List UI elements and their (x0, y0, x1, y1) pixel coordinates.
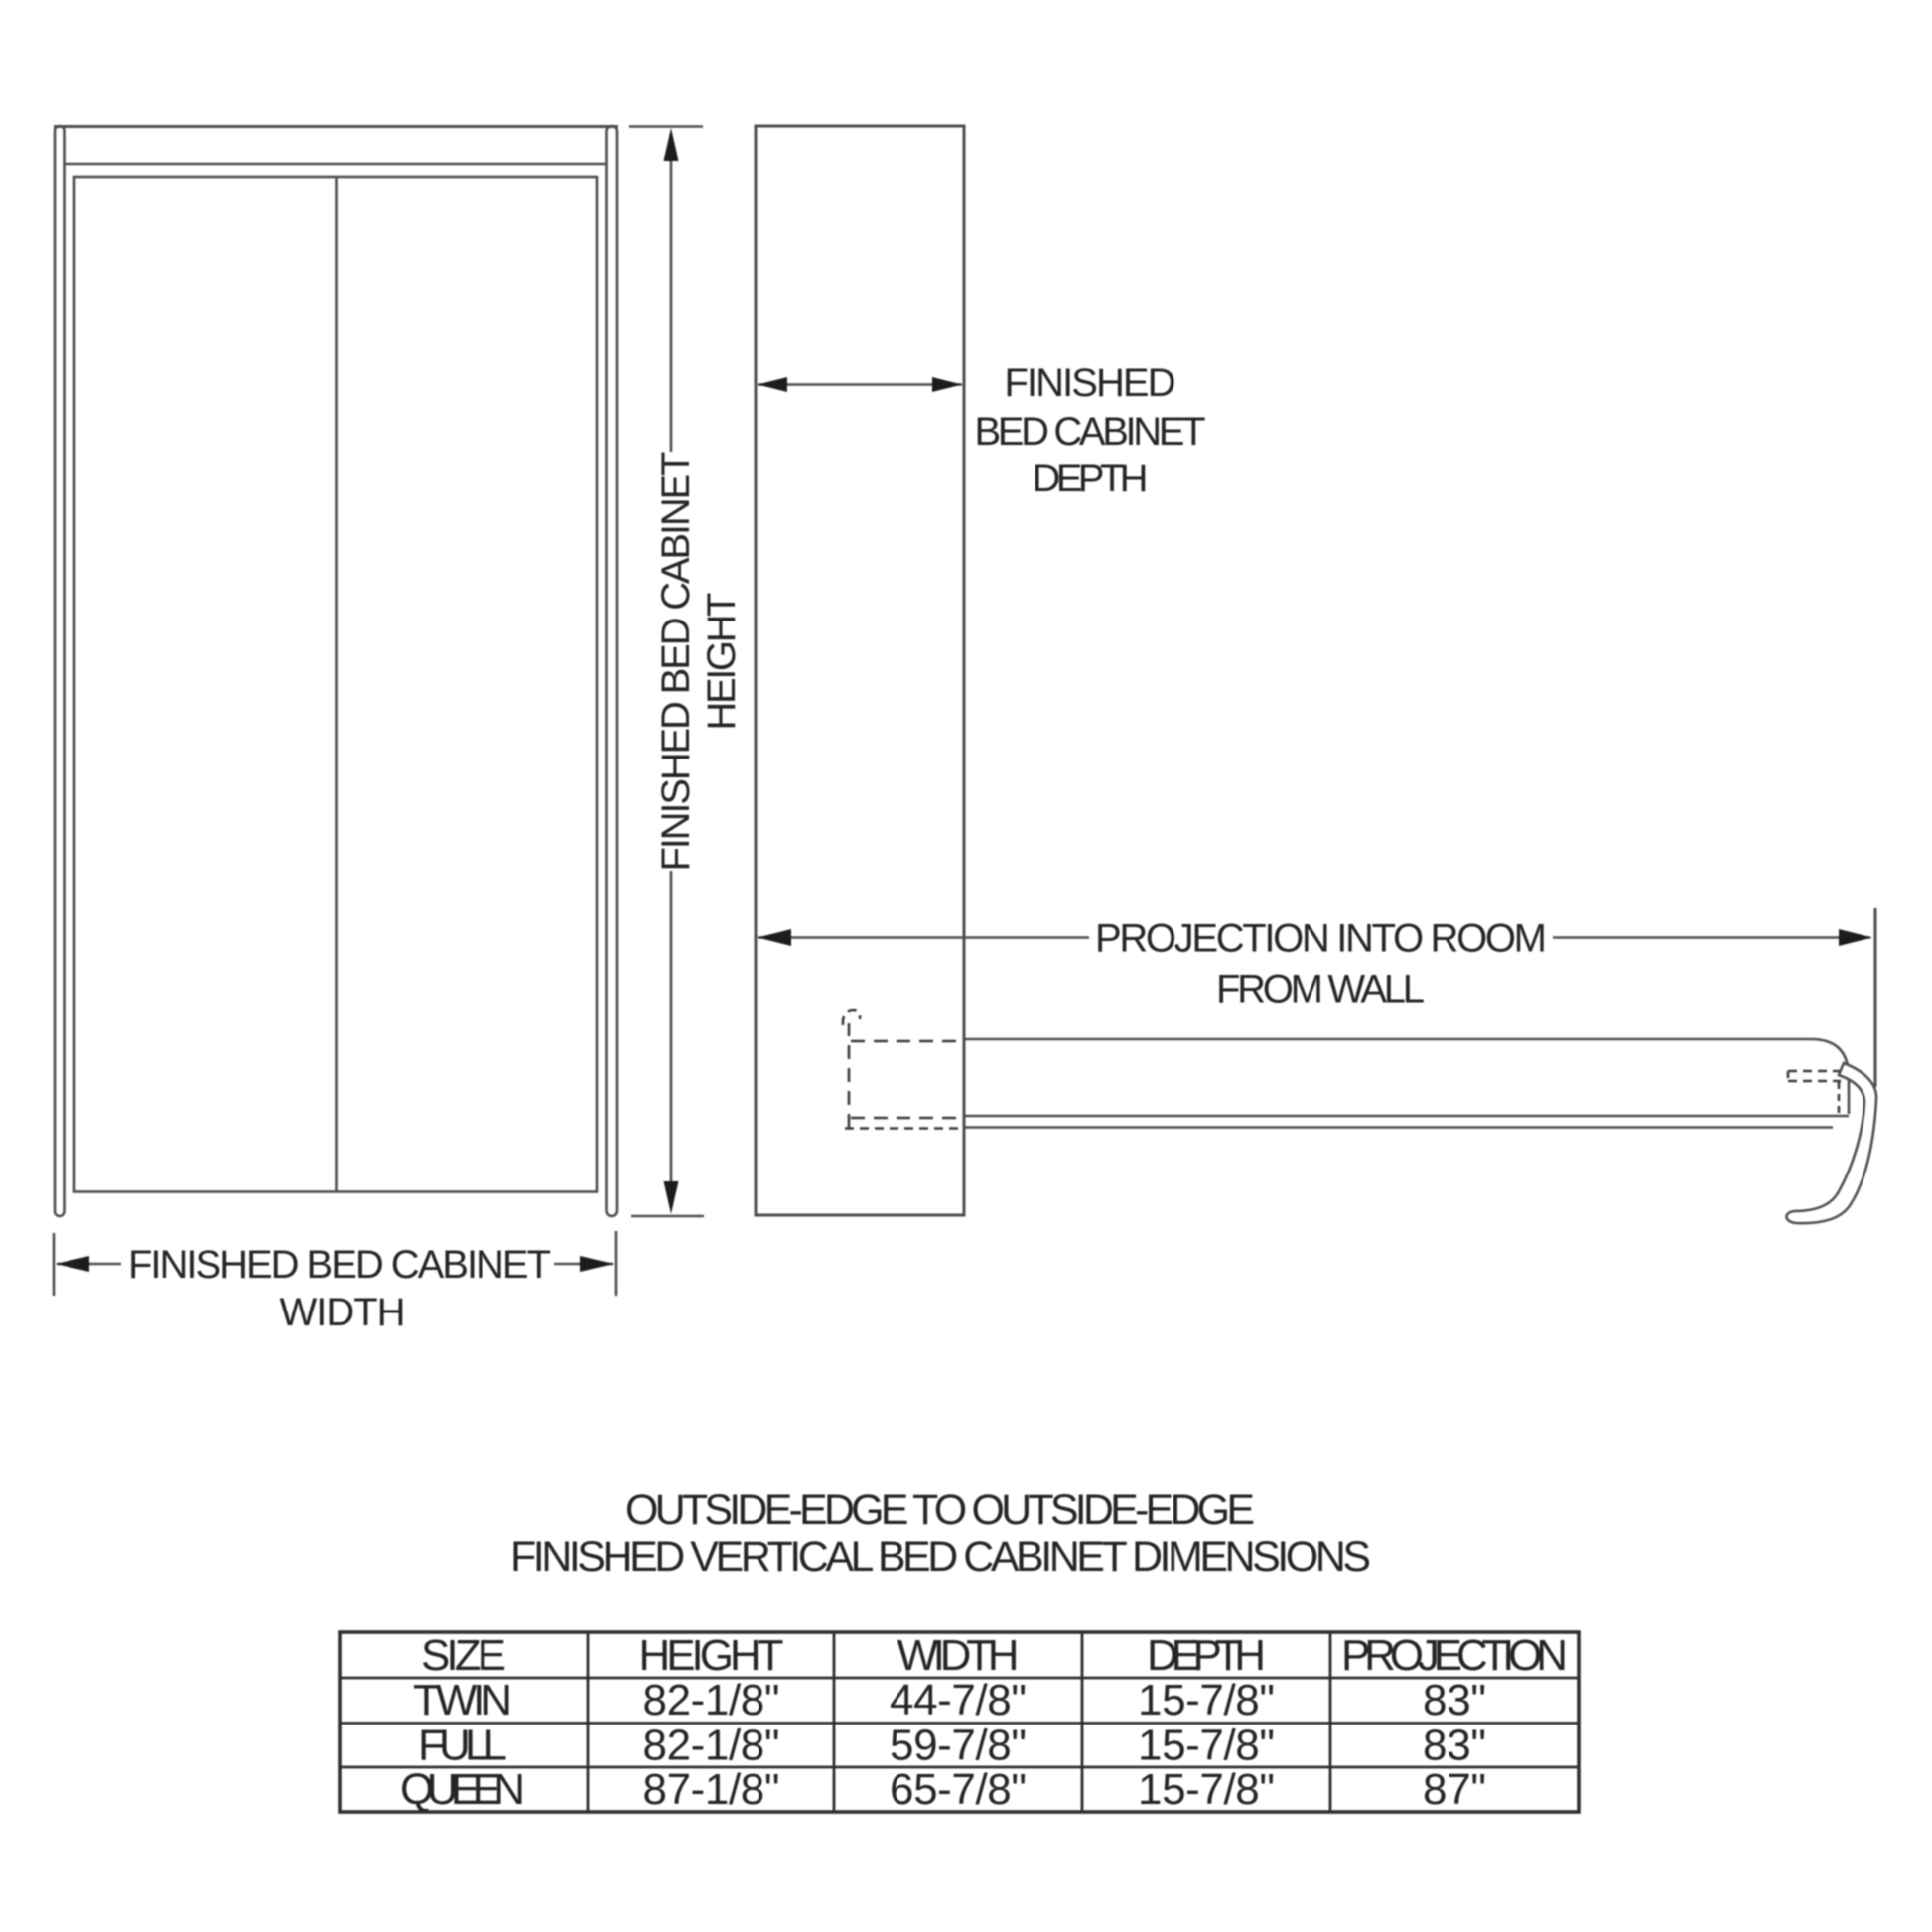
svg-text:FROM WALL: FROM WALL (1216, 968, 1425, 1012)
svg-text:83": 83" (1423, 1676, 1486, 1725)
svg-text:15-7/8": 15-7/8" (1138, 1765, 1275, 1814)
svg-text:QUEEN: QUEEN (400, 1765, 525, 1814)
svg-text:83": 83" (1423, 1722, 1486, 1770)
svg-text:FULL: FULL (418, 1722, 507, 1770)
svg-text:HEIGHT: HEIGHT (700, 593, 744, 731)
svg-text:15-7/8": 15-7/8" (1138, 1722, 1275, 1770)
svg-text:59-7/8": 59-7/8" (890, 1722, 1027, 1770)
svg-text:87-1/8": 87-1/8" (643, 1765, 780, 1814)
svg-text:82-1/8": 82-1/8" (643, 1722, 780, 1770)
svg-text:15-7/8": 15-7/8" (1138, 1676, 1275, 1725)
svg-text:DEPTH: DEPTH (1033, 457, 1149, 500)
svg-text:PROJECTION INTO ROOM: PROJECTION INTO ROOM (1095, 917, 1547, 961)
svg-text:OUTSIDE-EDGE TO OUTSIDE-EDGE: OUTSIDE-EDGE TO OUTSIDE-EDGE (625, 1486, 1255, 1534)
svg-text:HEIGHT: HEIGHT (639, 1631, 784, 1680)
svg-text:DEPTH: DEPTH (1147, 1631, 1266, 1680)
svg-text:FINISHED BED CABINET: FINISHED BED CABINET (128, 1243, 551, 1287)
svg-text:44-7/8": 44-7/8" (890, 1676, 1027, 1725)
svg-text:WIDTH: WIDTH (897, 1631, 1020, 1680)
svg-text:87": 87" (1423, 1765, 1486, 1814)
svg-text:FINISHED VERTICAL BED CABINET: FINISHED VERTICAL BED CABINET DIMENSIONS (510, 1533, 1371, 1581)
svg-text:SIZE: SIZE (421, 1631, 506, 1680)
svg-text:FINISHED: FINISHED (1005, 361, 1176, 405)
svg-text:65-7/8": 65-7/8" (890, 1765, 1027, 1814)
svg-text:BED CABINET: BED CABINET (975, 410, 1206, 454)
svg-text:TWIN: TWIN (413, 1676, 512, 1725)
svg-text:82-1/8": 82-1/8" (643, 1676, 780, 1725)
svg-text:PROJECTION: PROJECTION (1341, 1631, 1568, 1680)
svg-text:FINISHED BED CABINET: FINISHED BED CABINET (654, 452, 698, 872)
svg-text:WIDTH: WIDTH (280, 1291, 406, 1334)
